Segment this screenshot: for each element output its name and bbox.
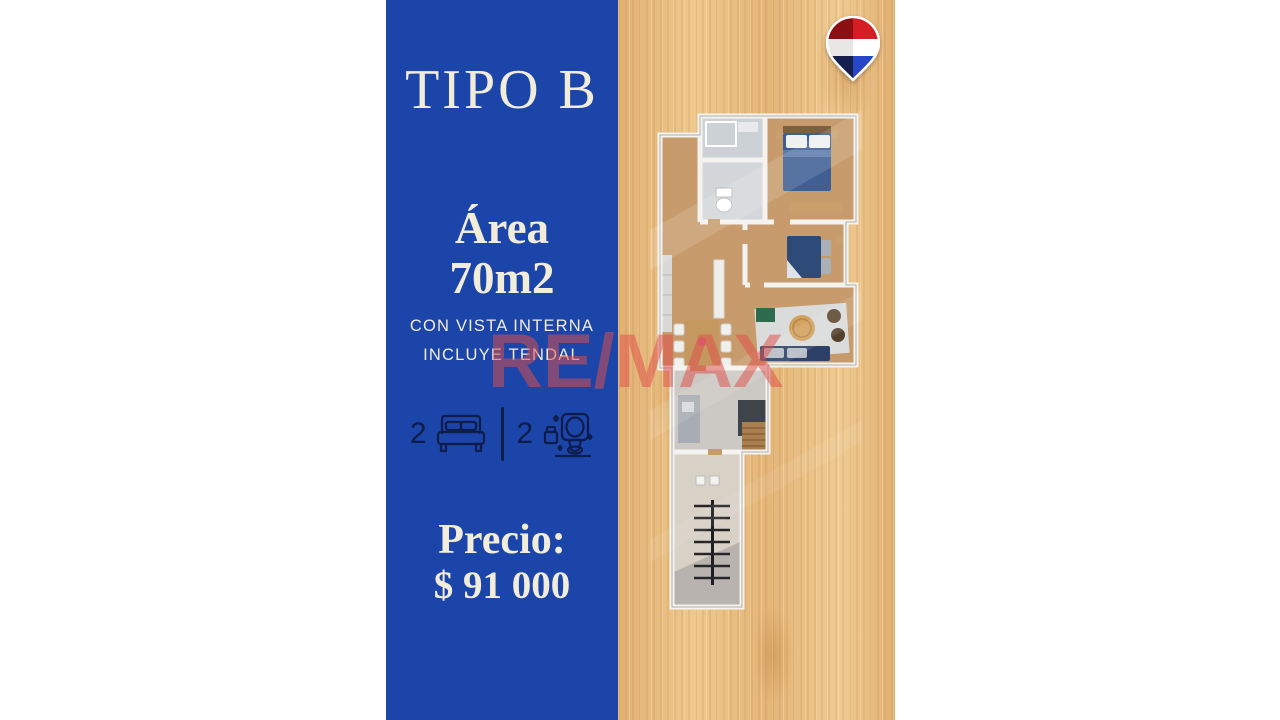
unit-type-title: TIPO B [386, 58, 618, 122]
price-block: Precio: $ 91 000 [386, 516, 618, 609]
amenities-row: 2 2 [386, 398, 618, 470]
feature-vista: CON VISTA INTERNA [386, 317, 618, 336]
price-value: $ 91 000 [386, 564, 618, 609]
real-estate-poster: TIPO B Área 70m2 CON VISTA INTERNA INCLU… [0, 0, 1280, 720]
area-value: 70m2 [450, 253, 555, 303]
info-panel: TIPO B Área 70m2 CON VISTA INTERNA INCLU… [386, 0, 618, 720]
bedrooms-count: 2 [410, 417, 427, 451]
amenities-divider [501, 407, 504, 461]
feature-tendal: INCLUYE TENDAL [386, 346, 618, 365]
price-label: Precio: [438, 517, 565, 563]
floor-plan [650, 110, 862, 610]
toilet-icon [540, 410, 594, 458]
area-label: Área [455, 203, 549, 253]
bathrooms-count: 2 [517, 417, 534, 451]
area-block: Área 70m2 [386, 203, 618, 304]
remax-balloon-icon [826, 16, 880, 82]
double-bed-icon [434, 413, 488, 455]
